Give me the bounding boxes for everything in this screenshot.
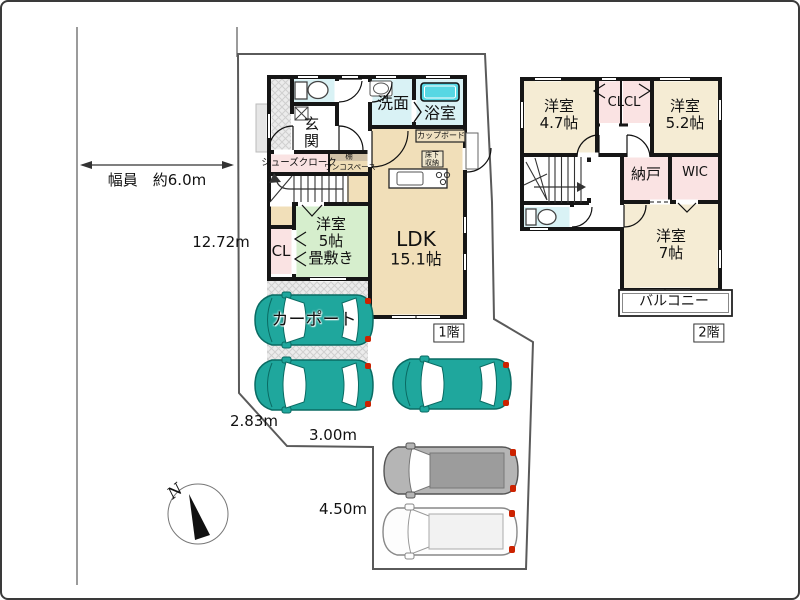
room-label-bedroom7-1: 洋室 [656,227,686,245]
room-label-bedroom7-2: 7帖 [659,244,684,262]
label-carport: カーポート [272,310,357,330]
room-label-ldk-2: 15.1帖 [390,249,442,268]
room-label-bedroom5-1: 洋室 [316,215,346,233]
car-teal-3 [393,356,511,412]
car-teal-2 [255,357,373,413]
cars [255,292,518,559]
room-label-bedroom5-3: 畳敷き [308,249,353,267]
room-label-clcl: CLCL [608,95,641,111]
label-underfloor-2: 収納 [425,159,439,167]
floor2-badge: 2階 [693,324,724,343]
van-white [383,504,517,559]
room-label-bedroom47-2: 4.7帖 [540,114,579,132]
floor1-stairs [269,173,348,204]
room-label-bedroom5-2: 5帖 [319,232,344,250]
room-label-bedroom52-1: 洋室 [670,97,700,115]
dim-west-label: 12.72m [192,233,250,251]
floorplan-page: 幅員 約6.0m 12.72m 2.83m 3.00m 4.50m N 玄関 洗… [0,0,800,600]
floor2-stairs [524,157,586,203]
room-label-genkan: 玄関 [302,116,320,150]
room-label-bedroom47-1: 洋室 [544,97,574,115]
room-label-cl1: CL [272,242,291,260]
label-shelf: 棚 [345,152,353,161]
road-width-arrow [80,161,234,169]
road-width-label: 幅員 約6.0m [108,171,206,189]
floor1-badge: 1階 [433,324,464,343]
dim-southeast-label: 4.50m [319,500,367,518]
floor2-fixtures [526,209,556,225]
label-cupboard: カップボード [417,131,465,141]
van-gray [384,443,518,498]
room-label-nando: 納戸 [631,165,661,183]
room-label-senmen: 洗面 [377,93,409,112]
label-wanko-space: ワンコスペース [324,163,376,172]
room-label-ldk-1: LDK [396,227,436,251]
dim-southwest-label: 2.83m [230,412,278,430]
label-balcony: バルコニー [639,294,709,311]
room-label-bedroom52-2: 5.2帖 [666,114,705,132]
dim-south-label: 3.00m [309,426,357,444]
entrance-porch [269,77,291,150]
room-label-wic: WIC [682,165,708,181]
room-label-bathroom: 浴室 [424,103,456,122]
